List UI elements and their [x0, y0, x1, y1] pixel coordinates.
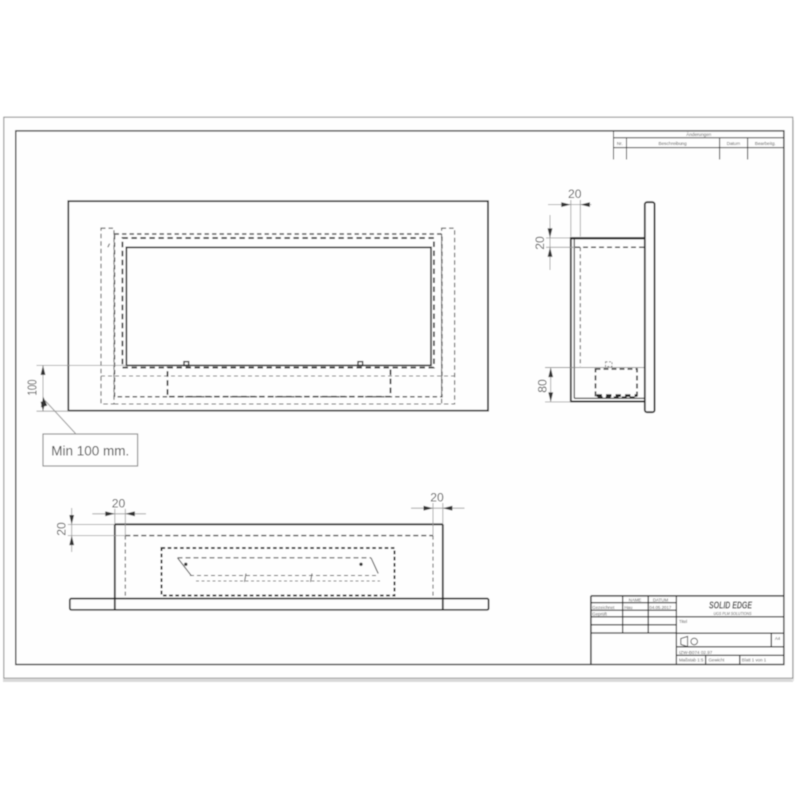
svg-text:20: 20 — [430, 491, 444, 505]
svg-text:Beschreibung: Beschreibung — [659, 141, 688, 146]
svg-text:NAME: NAME — [629, 597, 642, 602]
svg-text:IZW-B074 02.97: IZW-B074 02.97 — [679, 650, 713, 655]
svg-text:20: 20 — [533, 236, 547, 250]
svg-text:Geprüft: Geprüft — [592, 612, 607, 617]
svg-text:DATUM: DATUM — [653, 597, 669, 602]
svg-text:Titel: Titel — [679, 619, 687, 624]
svg-text:Min 100 mm.: Min 100 mm. — [51, 444, 129, 459]
svg-text:04.05.2017: 04.05.2017 — [649, 605, 672, 610]
svg-text:Maßstab 1:5: Maßstab 1:5 — [679, 658, 704, 663]
svg-text:20: 20 — [568, 187, 582, 201]
svg-text:80: 80 — [536, 379, 550, 393]
svg-text:Gewicht: Gewicht — [709, 658, 726, 663]
svg-text:Nr.: Nr. — [617, 141, 623, 146]
svg-text:Bearbeitg.: Bearbeitg. — [755, 141, 776, 146]
svg-text:A4: A4 — [775, 636, 781, 641]
svg-text:SOLID EDGE: SOLID EDGE — [709, 600, 752, 611]
svg-text:Gezeichnet: Gezeichnet — [592, 605, 615, 610]
svg-text:UGS PLM SOLUTIONS: UGS PLM SOLUTIONS — [714, 611, 752, 616]
svg-text:20: 20 — [112, 497, 126, 511]
svg-text:20: 20 — [55, 522, 69, 536]
svg-text:100: 100 — [26, 379, 40, 395]
svg-text:Blatt 1 von 1: Blatt 1 von 1 — [742, 658, 767, 663]
svg-text:Änderungen: Änderungen — [686, 131, 711, 137]
svg-text:Datum: Datum — [727, 141, 741, 146]
svg-text:Hau: Hau — [624, 605, 633, 610]
